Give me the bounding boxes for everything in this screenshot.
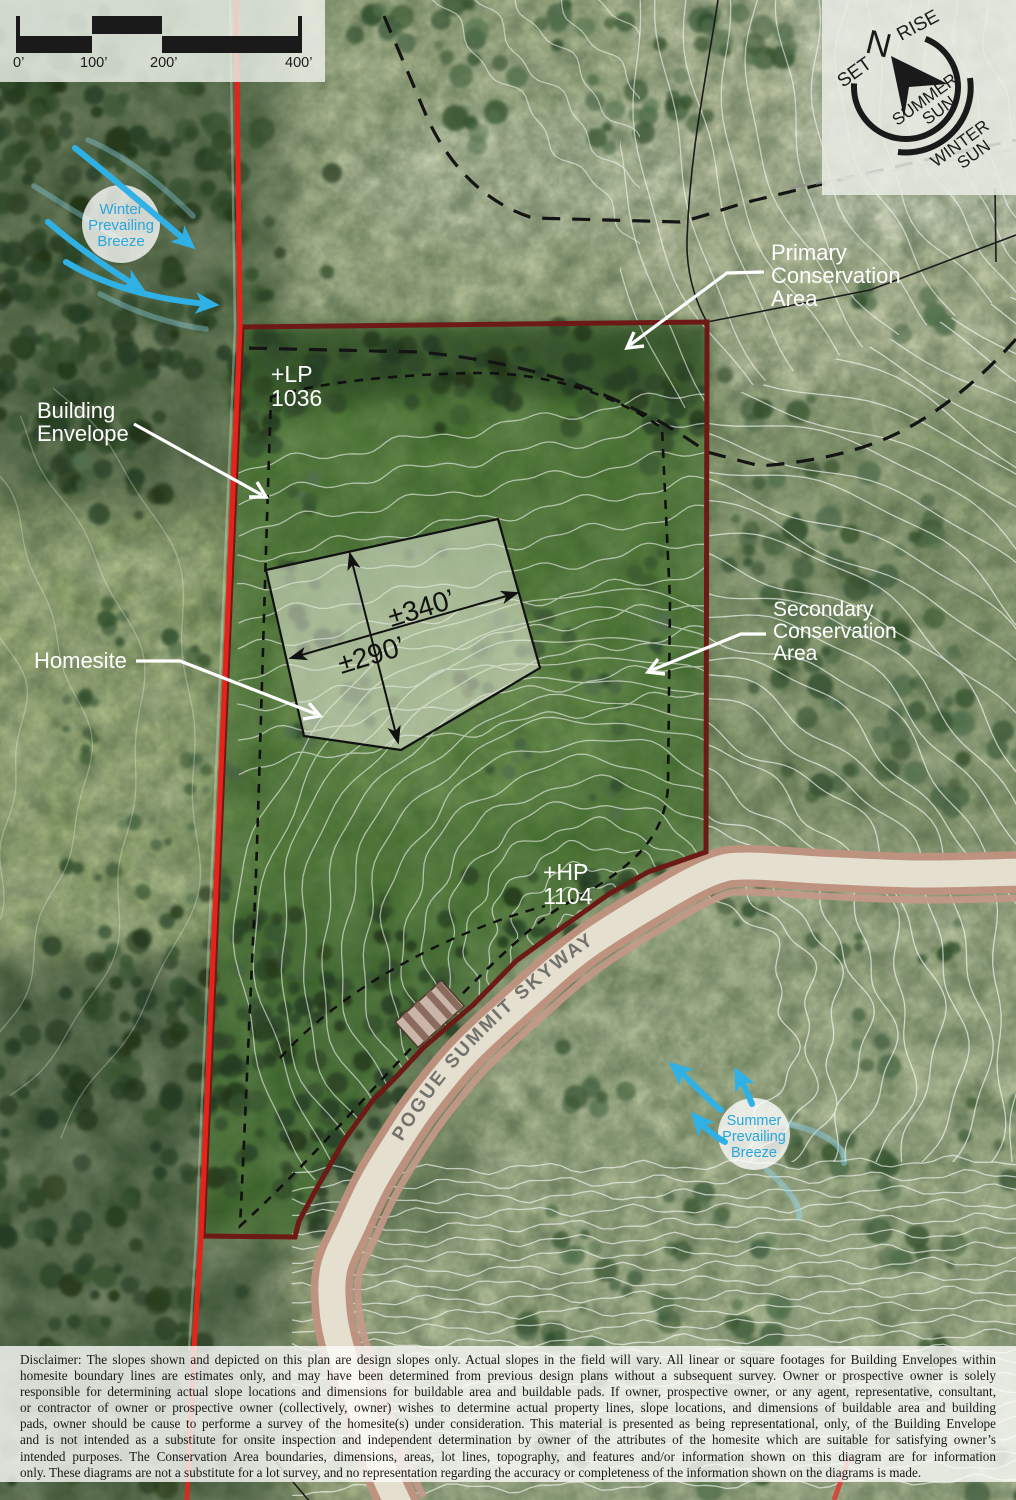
svg-text:+HP: +HP — [543, 859, 588, 885]
svg-text:Area: Area — [773, 642, 818, 665]
svg-text:Homesite: Homesite — [34, 648, 127, 673]
svg-text:Secondary: Secondary — [773, 598, 874, 621]
svg-text:Prevailing: Prevailing — [722, 1129, 786, 1145]
svg-text:0’: 0’ — [13, 55, 24, 71]
svg-text:Breeze: Breeze — [97, 233, 145, 250]
svg-text:Breeze: Breeze — [731, 1145, 777, 1161]
svg-text:Area: Area — [771, 286, 818, 311]
svg-text:Summer: Summer — [727, 1113, 782, 1129]
svg-text:Envelope: Envelope — [37, 421, 129, 446]
svg-text:Primary: Primary — [771, 240, 847, 265]
svg-text:Building: Building — [37, 398, 115, 423]
svg-text:200’: 200’ — [150, 55, 177, 71]
svg-text:1036: 1036 — [271, 385, 322, 411]
svg-text:+LP: +LP — [271, 361, 313, 387]
svg-text:Winter: Winter — [99, 201, 142, 218]
svg-text:100’: 100’ — [80, 55, 107, 71]
svg-text:Prevailing: Prevailing — [88, 217, 154, 234]
svg-text:Conservation: Conservation — [771, 263, 901, 288]
svg-text:1104: 1104 — [543, 883, 593, 909]
svg-text:Conservation: Conservation — [773, 620, 897, 643]
svg-text:400’: 400’ — [285, 55, 312, 71]
